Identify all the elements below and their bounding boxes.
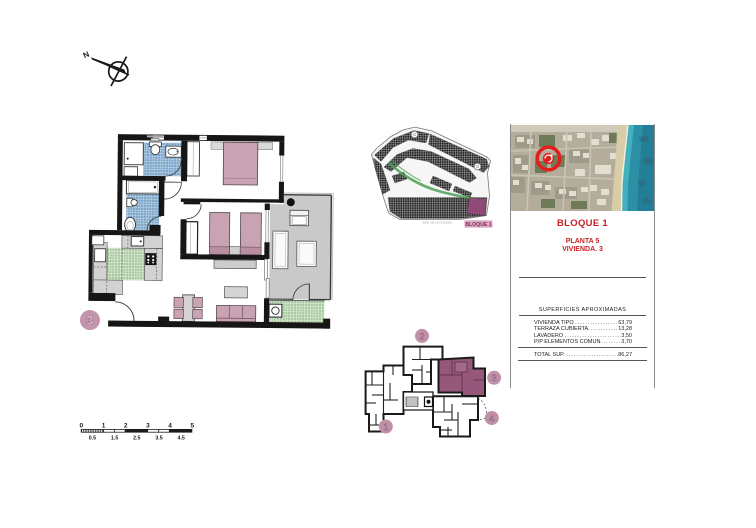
svg-text:4: 4: [168, 423, 172, 430]
svg-text:BLOQUE 1: BLOQUE 1: [465, 222, 492, 228]
svg-text:2: 2: [124, 423, 128, 430]
svg-text:1: 1: [102, 423, 106, 430]
svg-text:1: 1: [383, 422, 388, 432]
svg-text:3: 3: [146, 423, 150, 430]
svg-text:0.5: 0.5: [89, 436, 96, 442]
svg-text:1.5: 1.5: [111, 436, 118, 442]
svg-text:N: N: [82, 50, 91, 61]
svg-text:3: 3: [86, 314, 93, 328]
svg-text:3.5: 3.5: [155, 436, 162, 442]
svg-text:3: 3: [492, 373, 497, 383]
svg-text:0: 0: [79, 423, 83, 430]
svg-text:2: 2: [419, 331, 424, 341]
svg-text:4: 4: [489, 413, 494, 423]
svg-text:AVDA. DE LAS COLINAS: AVDA. DE LAS COLINAS: [422, 221, 452, 225]
svg-text:4.5: 4.5: [178, 436, 185, 442]
svg-text:2.5: 2.5: [133, 436, 140, 442]
svg-text:5: 5: [190, 423, 194, 430]
